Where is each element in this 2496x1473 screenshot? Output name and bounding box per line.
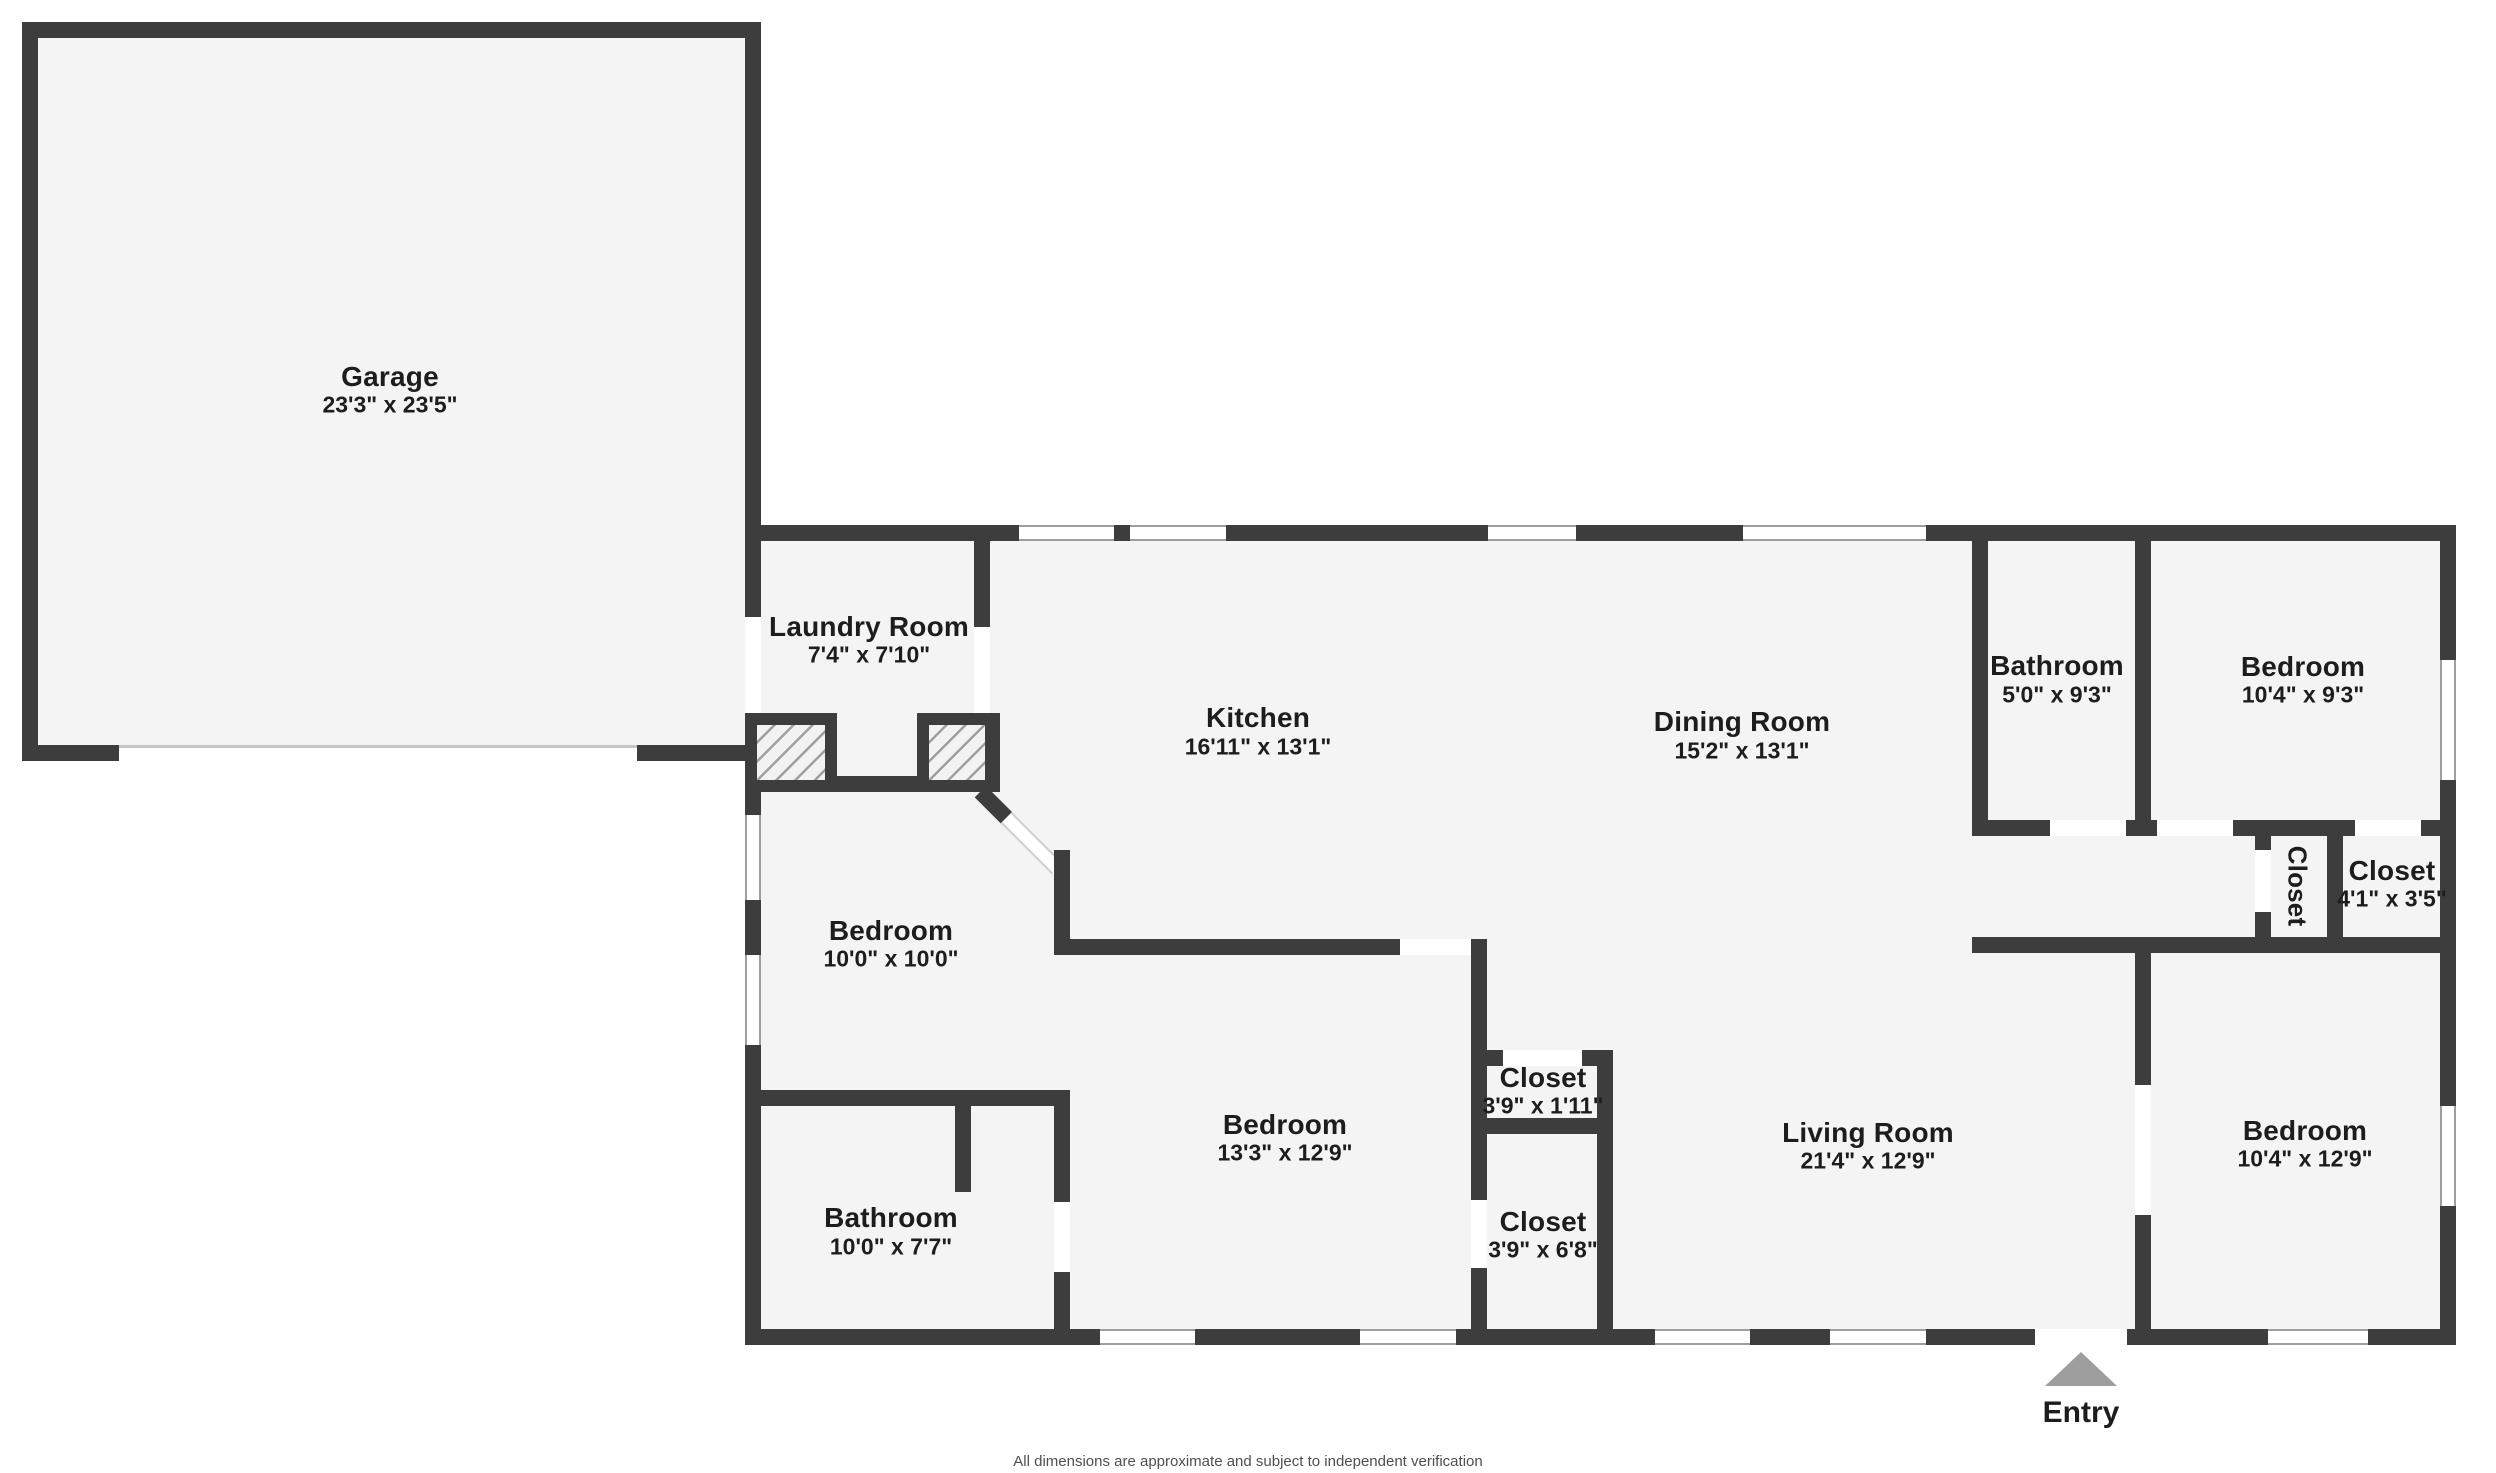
wall <box>745 1090 1070 1106</box>
room-dims-bathroom-top: 5'0" x 9'3" <box>2002 682 2112 709</box>
wall <box>955 1106 971 1192</box>
wall <box>22 22 38 761</box>
room-dims-garage: 23'3" x 23'5" <box>322 392 457 419</box>
utility-box-hatch <box>757 725 825 780</box>
door-opening <box>2135 1085 2151 1215</box>
disclaimer-text: All dimensions are approximate and subje… <box>0 1453 2496 1470</box>
door-opening <box>2157 820 2233 836</box>
door-opening <box>745 617 761 713</box>
wall <box>2135 541 2151 836</box>
room-dims-bathroom-left: 10'0" x 7'7" <box>830 1234 952 1261</box>
room-dims-closet-tall: 3'9" x 6'8" <box>1488 1237 1598 1264</box>
room-label-closet-tall: Closet <box>1500 1206 1587 1238</box>
room-label-living-room: Living Room <box>1782 1117 1954 1149</box>
window <box>1130 525 1226 541</box>
entry-door-opening <box>2035 1329 2127 1345</box>
window <box>1019 525 1114 541</box>
room-label-laundry: Laundry Room <box>769 611 969 643</box>
window <box>2268 1329 2368 1345</box>
wall <box>22 22 761 38</box>
room-label-dining: Dining Room <box>1654 706 1830 738</box>
wall <box>2440 525 2456 1345</box>
window <box>1743 525 1926 541</box>
floor-plan: Garage 23'3" x 23'5" Laundry Room 7'4" x… <box>0 0 2496 1473</box>
room-dims-bedroom-left: 10'0" x 10'0" <box>823 946 958 973</box>
window <box>2440 660 2456 780</box>
room-dims-living-room: 21'4" x 12'9" <box>1800 1148 1935 1175</box>
garage-door-opening <box>119 745 637 761</box>
room-label-bedroom-top-right: Bedroom <box>2241 651 2365 683</box>
room-dims-bedroom-bottom-right: 10'4" x 12'9" <box>2237 1146 2372 1173</box>
door-opening <box>1400 939 1471 955</box>
door-opening <box>974 627 990 713</box>
room-dims-bedroom-top-right: 10'4" x 9'3" <box>2242 682 2364 709</box>
room-dims-dining: 15'2" x 13'1" <box>1674 738 1809 765</box>
door-opening <box>2050 820 2126 836</box>
wall <box>1972 937 2456 953</box>
room-dims-bedroom-middle: 13'3" x 12'9" <box>1217 1140 1352 1167</box>
room-dims-laundry: 7'4" x 7'10" <box>808 642 930 669</box>
room-label-bedroom-middle: Bedroom <box>1223 1109 1347 1141</box>
wall <box>1972 541 1988 836</box>
entry-label: Entry <box>2043 1396 2120 1430</box>
room-label-kitchen: Kitchen <box>1206 702 1310 734</box>
window <box>1100 1329 1195 1345</box>
door-opening <box>2355 820 2421 836</box>
room-label-bathroom-top: Bathroom <box>1990 650 2124 682</box>
window <box>2440 1106 2456 1206</box>
room-label-bedroom-bottom-right: Bedroom <box>2243 1115 2367 1147</box>
window <box>1830 1329 1926 1345</box>
room-label-closet-right: Closet <box>2349 855 2436 887</box>
room-dims-closet-right: 4'1" x 3'5" <box>2337 886 2447 913</box>
room-label-closet-hall: Closet <box>2282 846 2313 927</box>
window <box>1488 525 1576 541</box>
door-opening <box>1471 1200 1487 1268</box>
room-dims-closet-small: 3'9" x 1'11" <box>1482 1093 1603 1120</box>
wall <box>1471 939 1487 1345</box>
window <box>745 815 761 900</box>
utility-box-hatch <box>929 725 985 780</box>
wall <box>745 525 2456 541</box>
room-label-garage: Garage <box>341 361 439 393</box>
door-opening <box>1054 1202 1070 1272</box>
wall <box>974 541 990 627</box>
room-dims-kitchen: 16'11" x 13'1" <box>1185 734 1332 761</box>
room-label-bedroom-left: Bedroom <box>829 915 953 947</box>
entry-arrow-icon <box>2045 1352 2117 1386</box>
room-label-closet-small: Closet <box>1500 1062 1587 1094</box>
window <box>1360 1329 1456 1345</box>
window <box>1655 1329 1750 1345</box>
room-label-bathroom-left: Bathroom <box>824 1202 958 1234</box>
window <box>745 955 761 1045</box>
wall <box>1471 1118 1613 1134</box>
door-opening <box>2255 850 2271 912</box>
